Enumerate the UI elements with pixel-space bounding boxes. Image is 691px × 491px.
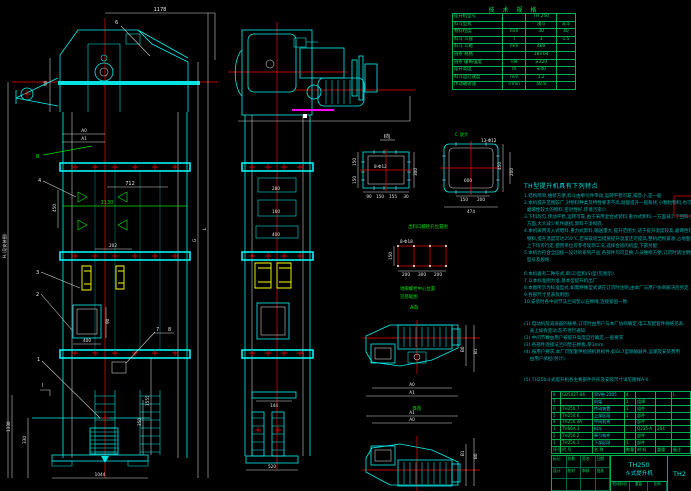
dim-c-600: 600 (464, 178, 472, 183)
anchor-note-1: 地脚螺栓中心位置 (400, 285, 436, 292)
tb-cell: 日期 (596, 456, 611, 468)
note-line (524, 370, 691, 377)
dim-c-200r: 200 (509, 168, 514, 176)
spec-row: 料斗 斗距mm480 (453, 44, 576, 52)
dim-1130: 1130 (101, 200, 114, 206)
callout-6: 6 (115, 20, 118, 26)
parts-row: 3TH66A.3料斗Q235-A204 (552, 426, 691, 433)
note-line: 6.本机备有二种形式,即(Z)型和(S)型(见图示). (524, 271, 691, 278)
drawing-number: TH2 (668, 456, 691, 491)
spec-row: 物料粒度mm3040 (453, 29, 576, 37)
parts-row: 8GB5027-86窄V带 23054L (552, 392, 691, 399)
detail-view-C: C 放大 13-Φ12 600 150 200 474 450 200 (441, 131, 514, 214)
dim-L: L (202, 227, 207, 230)
head-plan-view-b: A1 A0 B1 B0 (362, 410, 480, 491)
callout-B: B (36, 154, 40, 160)
callout-2: 2 (36, 292, 39, 298)
note-line: 磨琢性较大的物料,密封性好,环境污染少. (524, 207, 691, 214)
note-line: 3.下料均匀,传动平稳,运转可靠,由于采用混合式装料,重力式卸料,一方面减少了回… (524, 214, 691, 221)
tb-cell: 签名 (581, 456, 596, 468)
note-line: 表上如有变动,恕不另行通知. (524, 328, 691, 335)
note-line: 物料,提升温度可达250℃,若采取适当措施提升温度还可提高,整机结构紧凑,占地面… (524, 236, 691, 243)
tb-strip-cell: 重量 (630, 482, 649, 491)
outlet-caption: 出料口螺栓孔位置图 (408, 223, 448, 230)
title-block-product: TH250 斗式提升机 (611, 456, 667, 481)
note-line: 2.本机提升范围较广,对物料种类及特性要求不高,既能提升一般粉状,小颗粒物料,也… (524, 200, 691, 207)
front-elevation-view: 1178 6 90 A0 A1 1130 712 450 202 (1, 7, 218, 478)
dim-H: H,(见安装图) (1, 233, 8, 258)
parts-row: 2TH250.2牵引构件部件 (552, 433, 691, 440)
title-block-strip: 阶段标记 重量 比例 (611, 481, 667, 491)
features-heading: TH型提升机具有下列特点 (524, 181, 691, 190)
dim-400: 400 (83, 338, 91, 343)
callout-8: 8 (168, 327, 171, 333)
cad-sheet: 1178 6 90 A0 A1 1130 712 450 202 (0, 0, 691, 491)
dim-c-150: 150 (460, 197, 468, 202)
note-line: (4).按用户要求,本厂可配套供给随机易损件,如GL7型联轴器件,运输及安装费用 (524, 349, 691, 356)
dim-1555: 1555 (145, 395, 150, 406)
dim-r-holes: 8-Φ18 (400, 239, 413, 244)
dim-280: 280 (272, 186, 280, 191)
dim-c-200: 200 (477, 197, 485, 202)
dim-i-150b: 150 (352, 176, 357, 184)
parts-row: 6TH250.7传动装置1组件 (552, 405, 691, 412)
note-line (524, 363, 691, 370)
parts-row: 1TH250.1下部区段1部件 (552, 440, 691, 447)
note-line: (5).TH250斗式提升机各主要部件外形及安装尺寸详见图样A-0. (524, 377, 691, 384)
note-line: (3).各部件连接法兰间垫石棉板,厚3mm. (524, 342, 691, 349)
spec-row: 提升机型号TH 250 (453, 14, 576, 22)
callout-7: 7 (156, 327, 159, 333)
section-mark-I: Ⅰ (42, 383, 43, 389)
product-name: 斗式提升机 (625, 469, 653, 477)
note-line: 8.本图所示为标准型式,如需特殊型式请在订货时注明,由本厂与用户协商解决后另定. (524, 285, 691, 292)
dim-450: 450 (52, 204, 57, 212)
tb-cell: 标记 (552, 456, 567, 468)
anchor-note-2: 见基础图 (400, 293, 418, 300)
note-line: 4.本机采用流入式喂料,重力式卸料,输送量大,提升范围大,适于提升温度较高,磨琢… (524, 228, 691, 235)
dim-i-30: 30 (403, 194, 409, 199)
side-elevation-view: 280 160 400 144 520 (228, 22, 415, 470)
dim-712: 712 (125, 181, 135, 187)
outlet-bolt-hole-detail: 8-Φ18 150 200 300 200 (388, 239, 447, 277)
dim-520: 520 (268, 464, 276, 469)
dim-r-300: 300 (418, 272, 426, 277)
dim-1178: 1178 (154, 7, 167, 13)
head-plan-view-a: B0 B1 A0 A1 (362, 320, 480, 396)
dim-1044: 1044 (95, 472, 106, 477)
product-model: TH250 (628, 461, 649, 469)
note-line: 型号及规格. (524, 257, 691, 264)
dim-i-155: 155 (389, 194, 397, 199)
note-line: 7.以本标准图为准,基本型提升机出厂. (524, 278, 691, 285)
dim-i-90: 90 (366, 194, 372, 199)
dim-p1-a0: A0 (409, 382, 415, 387)
note-line: 9.各部尺寸见表及附图. (524, 292, 691, 299)
dim-p2-b0: B0 (473, 453, 478, 459)
tb-cell-empty (581, 479, 596, 491)
callout-3: 3 (36, 270, 39, 276)
view-a-label: A向 (410, 304, 418, 311)
dim-p1-b0: B0 (460, 346, 465, 352)
tb-strip-cell: 比例 (648, 482, 667, 491)
features-notes: TH型提升机具有下列特点 1.结构简单,维修方便,料斗由牵引件带动,运转平稳可靠… (524, 181, 691, 385)
note-line: 5.本机为符合全国统一设计的系列产品,各部件均可互换,人员维修方便,订货时请注明… (524, 250, 691, 257)
callout-1: 1 (37, 357, 40, 363)
tb-cell: 审核 (581, 468, 596, 480)
note-line: (1).电动机及减速器的规格,订货时由用户与本厂协商确定,电工及配套件规格见表, (524, 321, 691, 328)
dim-a0: A0 (81, 128, 87, 133)
note-line: (2).中间节数由用户按提升高度自行确定,一般要求. (524, 335, 691, 342)
note-line: 由用户承担(另计). (524, 356, 691, 363)
dim-350: 350 (137, 418, 142, 426)
dim-p2-a1: A1 (409, 410, 415, 415)
dim-c-450: 450 (497, 162, 502, 170)
dim-i-150c: 150 (376, 194, 384, 199)
spec-row: 传动轴转速r/min48.8 (453, 82, 576, 90)
detail-I-label: Ⅰ向 (384, 133, 390, 140)
dim-c-474: 474 (467, 209, 475, 214)
title-block: 标记 处数 签名 日期 设计 校对 审核 批准 TH250 斗式提升机 阶段标记… (551, 455, 691, 491)
dim-p1-a1: A1 (409, 390, 415, 395)
dim-202: 202 (109, 243, 117, 248)
dim-160: 160 (272, 209, 280, 214)
spec-row: 料斗运行速度m/s1.2 (453, 74, 576, 82)
spec-table: 提升机型号TH 250 料斗型式浅斗深斗 物料粒度mm3040 料斗 斗容l31… (452, 13, 576, 90)
spec-row: 提升高度m≤40 (453, 67, 576, 75)
parts-list: 8GB5027-86窄V带 23054L 7机架1组焊 6TH250.7传动装置… (551, 391, 691, 454)
tb-cell: 处数 (567, 456, 582, 468)
tb-cell: 设计 (552, 468, 567, 480)
note-line (524, 314, 691, 321)
note-line: 1.结构简单,维修方便,料斗由牵引件带动,运转平稳可靠,噪音小,是一般 (524, 193, 691, 200)
detail-I-holes: 8-Φ12 (374, 164, 387, 169)
note-line: 10.安装时各中间节法兰间垫以石棉绳,连接紧固一致. (524, 299, 691, 306)
detail-C-holes: 13-Φ12 (481, 138, 497, 143)
note-line: 上下均可行走,使用单位可参考现场工况,选择合适的机型,下部另配. (524, 243, 691, 250)
dim-90: 90 (43, 80, 48, 86)
callout-4: 4 (38, 178, 41, 184)
dim-r-200a: 200 (402, 272, 410, 277)
detail-C-label: C 放大 (455, 131, 469, 138)
parts-row: 7机架1组焊 (552, 398, 691, 405)
title-block-revision-grid: 标记 处数 签名 日期 设计 校对 审核 批准 (552, 456, 611, 491)
tb-cell-empty (567, 479, 582, 491)
spec-row: 链条 规格18×64 (453, 51, 576, 59)
note-line (524, 264, 691, 271)
spec-row: 料斗 斗容l31.5 (453, 36, 576, 44)
dim-G: G (192, 239, 197, 242)
parts-row: 4TH250.4A中间机壳部件 (552, 419, 691, 426)
dim-r-200b: 200 (434, 272, 442, 277)
dim-p2-b1: B1 (460, 450, 465, 456)
dim-144: 144 (270, 403, 278, 408)
dim-330: 330 (22, 436, 27, 444)
detail-view-I: Ⅰ向 8-Φ12 300 150 150 90 150 155 30 (352, 133, 418, 199)
tb-cell: 校对 (567, 468, 582, 480)
dim-1330: 1330 (6, 421, 11, 432)
note-line (524, 307, 691, 314)
dim-90b: 90 (105, 318, 110, 324)
parts-header-row: 序号代 号名 称数量材 料重量备注 (552, 447, 691, 454)
dim-p1-b1: B1 (473, 348, 478, 354)
tb-strip-cell: 阶段标记 (611, 482, 630, 491)
dim-i-300: 300 (413, 168, 418, 176)
tb-cell: 批准 (596, 468, 611, 480)
dim-i-150a: 150 (352, 158, 357, 166)
dim-r-150: 150 (388, 252, 393, 260)
tb-cell-empty (552, 479, 567, 491)
dim-p2-a0: A0 (409, 417, 415, 422)
parts-row: 5TH250.6上部区段1部件 (552, 412, 691, 419)
dim-a1: A1 (81, 136, 87, 141)
note-line: 方面,大大减少机件磨损,卸料干净彻底. (524, 221, 691, 228)
spec-row: 料斗型式浅斗深斗 (453, 21, 576, 29)
spec-row: 链条 破断强度kN≥320 (453, 59, 576, 67)
dim-400s: 400 (272, 232, 280, 237)
tb-cell-empty (596, 479, 611, 491)
